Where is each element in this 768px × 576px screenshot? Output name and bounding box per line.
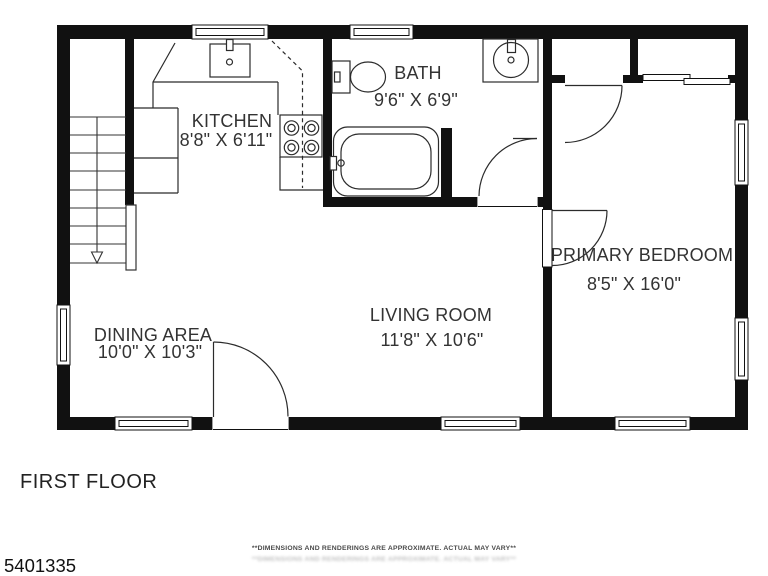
- wall-bedroom-west-upper: [543, 39, 552, 210]
- front-door: [213, 342, 288, 430]
- wall-closet-bottom-a: [543, 75, 565, 83]
- window-kitchen-top: [192, 25, 268, 39]
- window-bath-top: [350, 25, 413, 39]
- wall-closet-divider: [630, 39, 638, 75]
- room-dims-living: 11'8" X 10'6": [381, 330, 484, 350]
- stair-down-arrow-icon: [92, 252, 103, 263]
- room-label-kitchen: KITCHEN: [192, 111, 272, 131]
- window-living-bottom: [441, 417, 520, 430]
- window-dining-bottom: [115, 417, 192, 430]
- disclaimer-ghost-text: **DIMENSIONS AND RENDERINGS ARE APPROXIM…: [252, 556, 516, 563]
- room-dims-bath: 9'6" X 6'9": [374, 90, 458, 110]
- bathtub-icon: [330, 127, 439, 196]
- windows: [57, 25, 748, 430]
- closet-hinged-door: [565, 86, 622, 143]
- walls: [57, 25, 748, 430]
- wall-bath-bottom-left: [323, 197, 478, 207]
- plan-title: FIRST FLOOR: [20, 471, 157, 494]
- window-bedroom-right-upper: [735, 120, 748, 185]
- disclaimer-text: **DIMENSIONS AND RENDERINGS ARE APPROXIM…: [252, 545, 516, 552]
- bath-door: [478, 139, 537, 207]
- room-dims-kitchen: 8'8" X 6'11": [180, 130, 273, 150]
- wall-left: [57, 25, 70, 430]
- kitchen-sink: [210, 40, 250, 78]
- room-labels: KITCHEN 8'8" X 6'11" BATH 9'6" X 6'9" DI…: [94, 63, 733, 362]
- room-dims-bedroom: 8'5" X 16'0": [587, 274, 681, 294]
- room-dims-dining: 10'0" X 10'3": [98, 342, 202, 362]
- stove-icon: [280, 115, 322, 157]
- window-bedroom-bottom: [615, 417, 690, 430]
- window-dining-left: [57, 305, 70, 365]
- bathroom-sink: [483, 39, 538, 82]
- wall-closet-bottom-b: [623, 75, 643, 83]
- wall-tub-alcove: [441, 128, 452, 197]
- closet-sliding-doors: [643, 75, 730, 85]
- room-label-bath: BATH: [394, 63, 441, 83]
- listing-id: 5401335: [4, 555, 76, 576]
- room-label-bedroom: PRIMARY BEDROOM: [551, 245, 733, 265]
- toilet-icon: [332, 61, 386, 93]
- stair-treads: [70, 117, 126, 263]
- window-bedroom-right-lower: [735, 318, 748, 380]
- wall-bedroom-west-lower: [543, 267, 552, 417]
- floor-plan-page: KITCHEN 8'8" X 6'11" BATH 9'6" X 6'9" DI…: [0, 0, 768, 576]
- room-label-living: LIVING ROOM: [370, 305, 492, 325]
- wall-stairs-kitchen: [125, 39, 134, 205]
- stair-rail: [126, 205, 136, 270]
- wall-kitchen-bath: [323, 39, 332, 197]
